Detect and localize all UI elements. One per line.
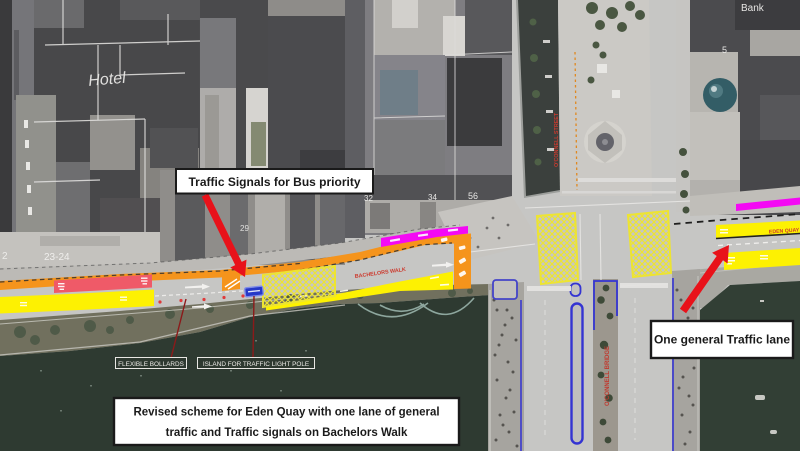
svg-text:34: 34	[428, 193, 437, 202]
svg-text:ISLAND FOR TRAFFIC LIGHT POLE: ISLAND FOR TRAFFIC LIGHT POLE	[203, 361, 309, 368]
svg-text:O'CONNELL STREET: O'CONNELL STREET	[554, 112, 560, 167]
svg-text:5: 5	[722, 45, 727, 55]
svg-text:Revised scheme for Eden Quay w: Revised scheme for Eden Quay with one la…	[133, 407, 439, 419]
svg-text:traffic and Traffic signals on: traffic and Traffic signals on Bachelors…	[166, 427, 408, 439]
svg-text:FLEXIBLE BOLLARDS: FLEXIBLE BOLLARDS	[118, 361, 184, 368]
svg-text:56: 56	[468, 191, 478, 201]
svg-text:One general Traffic lane: One general Traffic lane	[654, 333, 790, 347]
svg-text:29: 29	[240, 224, 249, 233]
svg-text:Traffic Signals for Bus priori: Traffic Signals for Bus priority	[188, 175, 360, 189]
svg-text:2: 2	[2, 251, 8, 262]
svg-text:Bank: Bank	[741, 3, 765, 14]
svg-text:O'CONNELL BRIDGE: O'CONNELL BRIDGE	[605, 346, 611, 406]
svg-text:32: 32	[364, 194, 373, 203]
svg-text:Hotel: Hotel	[88, 70, 127, 90]
svg-text:23-24: 23-24	[44, 252, 70, 263]
